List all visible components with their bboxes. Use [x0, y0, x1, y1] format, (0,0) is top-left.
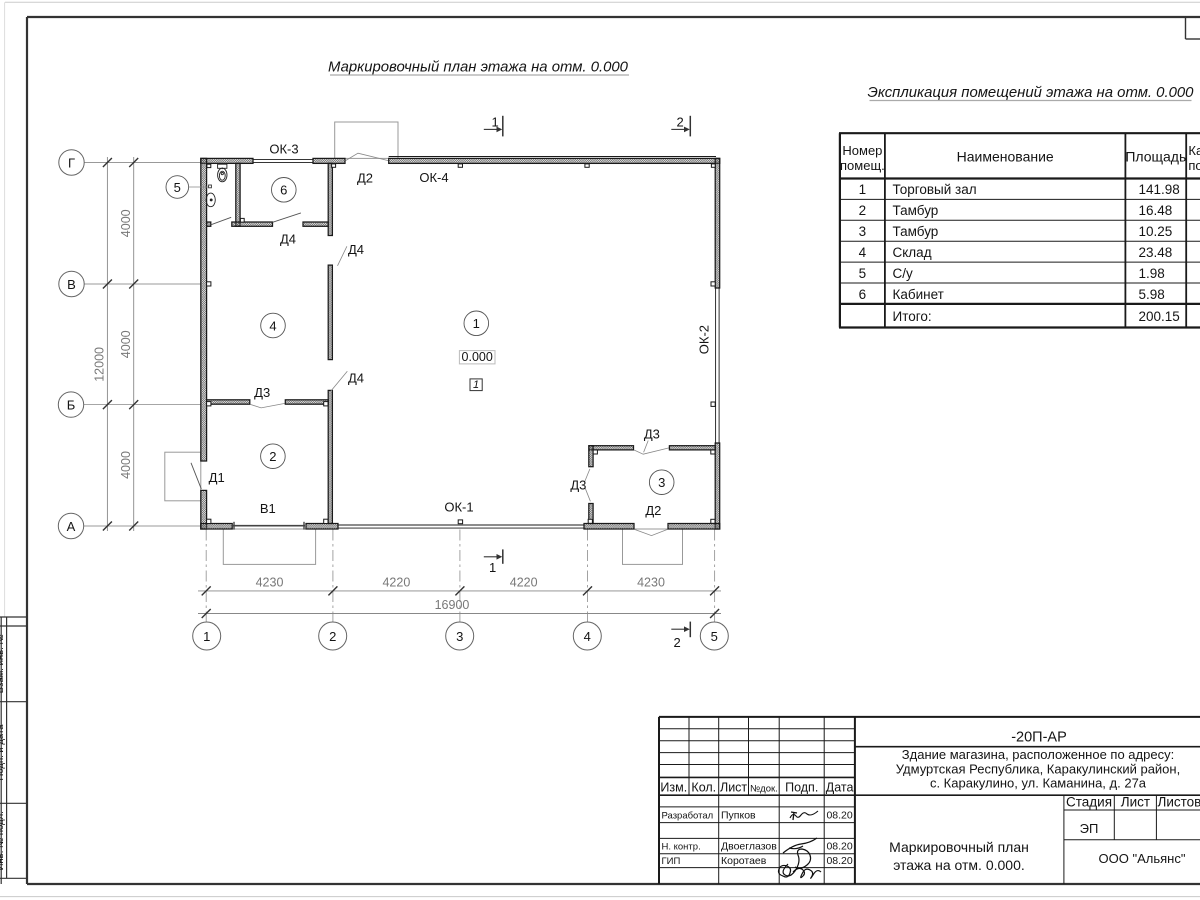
svg-text:Склад: Склад	[893, 245, 932, 260]
svg-text:2: 2	[677, 115, 684, 130]
svg-text:Тамбур: Тамбур	[893, 203, 939, 218]
svg-text:ОК-2: ОК-2	[697, 325, 712, 354]
svg-text:5: 5	[711, 629, 718, 644]
svg-text:Д4: Д4	[348, 242, 364, 257]
svg-text:Экспликация помещений этажа на: Экспликация помещений этажа на отм. 0.00…	[868, 85, 1195, 101]
svg-text:4000: 4000	[119, 209, 133, 237]
svg-text:6: 6	[859, 287, 867, 302]
svg-text:ЭП: ЭП	[1080, 821, 1099, 836]
svg-text:08.20: 08.20	[826, 855, 852, 867]
svg-text:1: 1	[473, 379, 479, 391]
svg-text:5.98: 5.98	[1139, 287, 1165, 302]
svg-text:Маркировочный план: Маркировочный план	[889, 839, 1029, 855]
svg-text:с. Каракулино, ул. Каманина, д: с. Каракулино, ул. Каманина, д. 27а	[930, 776, 1147, 791]
svg-text:Тамбур: Тамбур	[893, 224, 939, 239]
svg-text:Н. контр.: Н. контр.	[662, 842, 701, 853]
svg-text:Ка: Ка	[1188, 143, 1200, 158]
svg-text:по: по	[1188, 158, 1200, 173]
svg-text:Итого:: Итого:	[893, 309, 932, 324]
svg-text:ООО "Альянс": ООО "Альянс"	[1099, 851, 1186, 866]
svg-text:Д4: Д4	[280, 232, 296, 247]
svg-text:Стадия: Стадия	[1066, 795, 1112, 810]
svg-text:4220: 4220	[382, 576, 410, 590]
svg-text:Лист: Лист	[1121, 795, 1150, 810]
svg-text:200.15: 200.15	[1139, 309, 1180, 324]
svg-text:Лист: Лист	[720, 780, 747, 794]
svg-text:Д2: Д2	[645, 503, 661, 518]
svg-text:этажа на отм. 0.000.: этажа на отм. 0.000.	[893, 857, 1025, 873]
svg-text:Здание магазина, расположенное: Здание магазина, расположенное по адресу…	[902, 747, 1174, 762]
svg-text:3: 3	[456, 629, 463, 644]
svg-text:В1: В1	[260, 501, 276, 516]
svg-text:Маркировочный план этажа на от: Маркировочный план этажа на отм. 0.000	[328, 60, 629, 76]
svg-text:-20П-АР: -20П-АР	[1011, 730, 1067, 746]
svg-text:Разработал: Разработал	[662, 810, 714, 821]
svg-text:4: 4	[269, 318, 276, 333]
svg-text:Кабинет: Кабинет	[893, 287, 944, 302]
svg-text:ОК-3: ОК-3	[269, 141, 298, 156]
svg-text:Д4: Д4	[348, 370, 364, 385]
svg-text:Взам. инв. №: Взам. инв. №	[0, 634, 6, 693]
svg-text:Д2: Д2	[357, 170, 373, 185]
svg-text:Инв. № подл.: Инв. № подл.	[0, 811, 6, 870]
svg-text:2: 2	[859, 203, 867, 218]
svg-text:помещ.: помещ.	[840, 158, 885, 173]
svg-text:1: 1	[859, 182, 867, 197]
svg-text:1: 1	[489, 560, 496, 575]
svg-text:2: 2	[674, 635, 681, 650]
svg-text:Д3: Д3	[570, 478, 586, 493]
svg-text:08.20: 08.20	[826, 841, 852, 853]
svg-text:В: В	[67, 277, 76, 292]
svg-text:Удмуртская Республика, Каракул: Удмуртская Республика, Каракулинский рай…	[896, 762, 1180, 777]
svg-text:1: 1	[203, 629, 210, 644]
svg-text:Коротаев: Коротаев	[721, 855, 767, 867]
svg-text:4230: 4230	[637, 576, 665, 590]
svg-text:1: 1	[473, 316, 480, 331]
svg-text:141.98: 141.98	[1139, 182, 1180, 197]
svg-text:2: 2	[269, 449, 276, 464]
svg-text:4: 4	[584, 629, 591, 644]
svg-text:4220: 4220	[510, 576, 538, 590]
svg-text:Двоеглазов: Двоеглазов	[721, 841, 777, 853]
svg-text:Номер: Номер	[842, 143, 882, 158]
svg-text:ГИП: ГИП	[662, 856, 681, 867]
svg-text:Наименование: Наименование	[957, 149, 1054, 165]
svg-text:3: 3	[859, 224, 867, 239]
svg-text:6: 6	[280, 183, 287, 198]
svg-text:Б: Б	[67, 397, 76, 412]
svg-text:3: 3	[658, 475, 665, 490]
svg-text:Д3: Д3	[644, 427, 660, 442]
svg-text:Подп.: Подп.	[785, 780, 818, 794]
svg-text:0.000: 0.000	[462, 350, 493, 364]
svg-text:10.25: 10.25	[1139, 224, 1173, 239]
svg-text:№док.: №док.	[750, 783, 778, 794]
svg-text:Изм.: Изм.	[660, 780, 687, 794]
svg-text:16.48: 16.48	[1139, 203, 1173, 218]
svg-text:2: 2	[329, 629, 336, 644]
svg-text:08.20: 08.20	[826, 809, 852, 821]
svg-text:Листов: Листов	[1157, 795, 1200, 810]
svg-text:12000: 12000	[93, 347, 107, 382]
svg-text:Дата: Дата	[826, 780, 854, 794]
svg-text:Торговый зал: Торговый зал	[893, 182, 977, 197]
svg-text:ОК-1: ОК-1	[444, 500, 473, 515]
svg-text:Пупков: Пупков	[721, 809, 756, 821]
svg-text:4230: 4230	[256, 576, 284, 590]
svg-text:23.48: 23.48	[1139, 245, 1173, 260]
svg-text:Подп. и дата: Подп. и дата	[0, 724, 6, 781]
svg-text:С/у: С/у	[893, 266, 914, 281]
svg-text:Кол.: Кол.	[691, 780, 716, 794]
svg-text:4000: 4000	[119, 330, 133, 358]
svg-text:Г: Г	[68, 155, 75, 170]
svg-text:Д1: Д1	[209, 470, 225, 485]
svg-text:5: 5	[859, 266, 867, 281]
svg-text:4000: 4000	[119, 451, 133, 479]
svg-text:ОК-4: ОК-4	[419, 170, 448, 185]
svg-text:5: 5	[174, 180, 181, 195]
svg-text:4: 4	[859, 245, 867, 260]
svg-text:Д3: Д3	[254, 385, 270, 400]
svg-text:16900: 16900	[435, 598, 470, 612]
svg-text:Площадь: Площадь	[1125, 149, 1186, 165]
svg-text:1.98: 1.98	[1139, 266, 1165, 281]
svg-text:А: А	[67, 519, 76, 534]
